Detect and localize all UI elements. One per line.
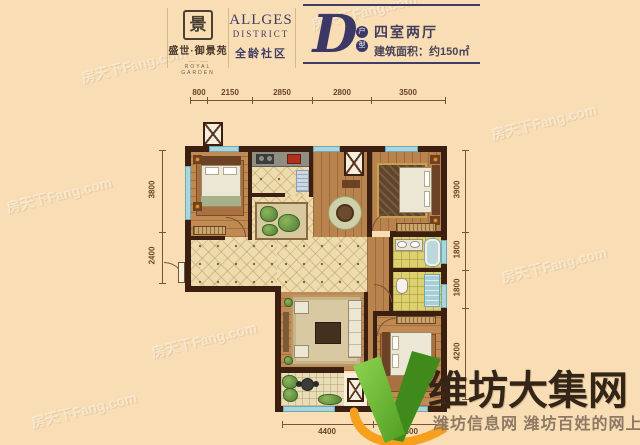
dimension-label: 1800 <box>453 233 462 267</box>
hallway-floor <box>277 237 367 292</box>
wall <box>277 367 344 373</box>
wall <box>309 152 313 197</box>
hallway-floor <box>191 237 277 286</box>
plant-icon <box>284 298 293 307</box>
dimension-label: 4400 <box>310 427 344 436</box>
dimension-line-left <box>162 150 163 283</box>
site-logo-title: 维坊大集网 <box>428 358 628 416</box>
dimension-label: 2800 <box>325 88 359 97</box>
wall <box>275 286 281 412</box>
bedroom-3-wardrobe <box>396 316 436 324</box>
bedroom-1-pillow <box>205 167 219 175</box>
bedroom-1-wardrobe <box>193 226 226 235</box>
plant-icon <box>318 394 342 405</box>
dimension-label: 3500 <box>391 88 425 97</box>
dim-tick <box>462 232 469 233</box>
dining-table <box>336 204 354 222</box>
master-wardrobe <box>396 223 436 232</box>
balcony-chair <box>296 381 302 387</box>
dimension-label: 800 <box>182 88 216 97</box>
site-logo-subtitle: 潍坊信息网 潍坊百姓的网上大集 <box>433 410 640 434</box>
window <box>385 146 418 152</box>
window <box>441 240 447 264</box>
window <box>283 406 335 412</box>
balcony-chair <box>313 381 319 387</box>
coffee-table <box>315 322 341 344</box>
living-armchair <box>294 301 309 314</box>
shower-enclosure <box>424 274 440 307</box>
dim-tick <box>312 97 313 104</box>
plant-icon <box>284 356 293 365</box>
bathtub <box>425 239 440 266</box>
plant-icon <box>260 206 278 222</box>
wall <box>252 193 285 197</box>
toilet-icon <box>396 278 408 294</box>
master-bed-pillow <box>424 171 430 187</box>
dimension-label: 3800 <box>148 173 157 207</box>
bedroom-1-pillow <box>223 167 237 175</box>
master-bed-pillow <box>424 191 430 207</box>
dimension-line-top <box>190 100 445 101</box>
lamp-icon <box>195 204 200 209</box>
bedroom-1-bed-headboard <box>201 156 241 165</box>
plant-icon <box>283 388 298 402</box>
dimension-label: 2850 <box>265 88 299 97</box>
flyer-canvas: 房天下Fang.com 房天下Fang.com 房天下Fang.com 房天下F… <box>0 0 640 445</box>
bedroom-3-pillow <box>392 336 399 350</box>
plant-icon <box>262 224 278 236</box>
dim-tick <box>190 97 191 104</box>
tv-stand <box>283 312 289 352</box>
lamp-icon <box>433 157 438 162</box>
living-armchair <box>294 345 309 358</box>
sink-basin-icon <box>410 241 420 248</box>
stove-icon <box>287 154 301 164</box>
wall <box>185 286 281 292</box>
dining-sideboard <box>342 180 360 188</box>
refrigerator <box>296 170 309 192</box>
wall <box>393 268 441 272</box>
dim-tick <box>462 270 469 271</box>
entry-door-leaf <box>178 262 185 283</box>
lamp-icon <box>195 157 200 162</box>
window <box>209 146 239 152</box>
dimension-label: 2150 <box>213 88 247 97</box>
sink-basin-icon <box>397 241 407 248</box>
window <box>185 166 191 220</box>
dim-tick <box>282 421 283 428</box>
bedroom-1-bed-throw <box>201 196 241 206</box>
dim-tick <box>252 97 253 104</box>
master-bed-headboard <box>432 165 440 215</box>
flue-shaft-icon <box>203 122 223 146</box>
dim-tick <box>159 232 166 233</box>
wall <box>367 152 372 237</box>
dimension-label: 1800 <box>453 271 462 305</box>
flue-shaft-icon <box>344 150 364 176</box>
dimension-label: 2400 <box>148 239 157 273</box>
dim-tick <box>371 97 372 104</box>
dim-tick <box>159 150 166 151</box>
sink-basin-icon <box>267 156 272 161</box>
dim-tick <box>445 97 446 104</box>
dim-tick <box>159 283 166 284</box>
sink-basin-icon <box>259 156 264 161</box>
dim-tick <box>462 150 469 151</box>
window <box>441 284 447 308</box>
plant-icon <box>278 214 300 232</box>
dim-tick <box>462 308 469 309</box>
wall <box>191 236 225 240</box>
dim-tick <box>207 97 208 104</box>
dimension-label: 3900 <box>453 173 462 207</box>
window <box>313 146 340 152</box>
